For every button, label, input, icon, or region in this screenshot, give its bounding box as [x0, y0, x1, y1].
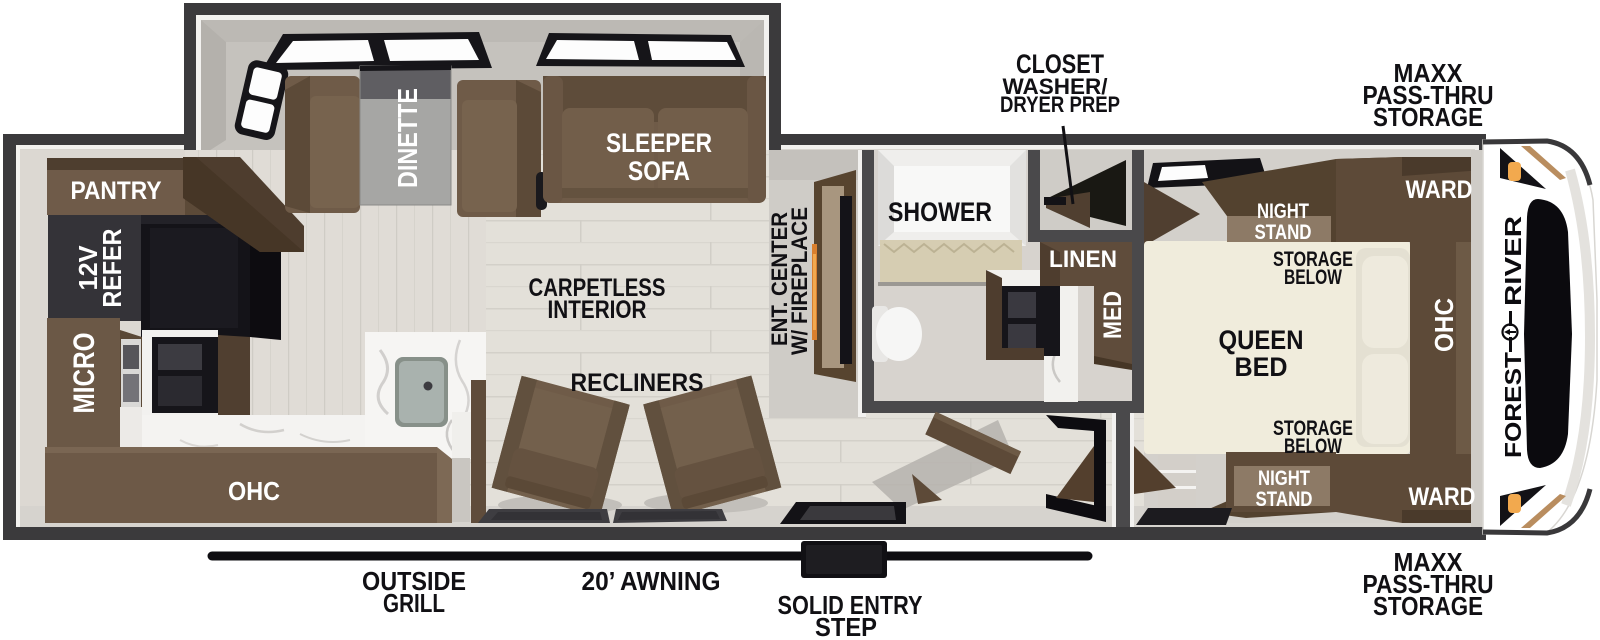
svg-text:GRILL: GRILL	[383, 588, 445, 618]
svg-text:STAND: STAND	[1256, 488, 1313, 511]
svg-text:FOREST: FOREST	[1500, 352, 1526, 458]
svg-text:RIVER: RIVER	[1500, 216, 1526, 306]
svg-text:WARD: WARD	[1406, 176, 1473, 204]
svg-text:DRYER PREP: DRYER PREP	[1000, 92, 1120, 117]
svg-text:REFER: REFER	[97, 228, 127, 307]
svg-text:INTERIOR: INTERIOR	[548, 296, 647, 324]
svg-text:LINEN: LINEN	[1049, 246, 1117, 273]
svg-text:STORAGE: STORAGE	[1373, 102, 1483, 132]
svg-text:W/ FIREPLACE: W/ FIREPLACE	[787, 207, 812, 355]
svg-text:OHC: OHC	[228, 476, 280, 506]
svg-text:20’ AWNING: 20’ AWNING	[582, 566, 721, 596]
svg-text:BED: BED	[1235, 352, 1288, 382]
svg-text:OHC: OHC	[1429, 298, 1459, 352]
svg-text:SLEEPER: SLEEPER	[606, 128, 712, 158]
svg-text:DINETTE: DINETTE	[392, 88, 423, 188]
svg-text:STORAGE: STORAGE	[1373, 591, 1483, 621]
svg-text:SHOWER: SHOWER	[888, 197, 992, 227]
svg-text:RECLINERS: RECLINERS	[571, 369, 704, 397]
svg-text:MED: MED	[1099, 291, 1127, 339]
svg-text:NIGHT: NIGHT	[1257, 200, 1309, 223]
svg-text:BELOW: BELOW	[1284, 435, 1342, 458]
svg-text:SOFA: SOFA	[628, 156, 690, 186]
svg-text:PANTRY: PANTRY	[71, 177, 162, 205]
svg-text:STAND: STAND	[1255, 221, 1312, 244]
svg-text:QUEEN: QUEEN	[1219, 325, 1304, 355]
svg-text:MICRO: MICRO	[68, 333, 101, 414]
svg-text:BELOW: BELOW	[1284, 266, 1342, 289]
svg-text:STEP: STEP	[815, 612, 877, 640]
svg-text:NIGHT: NIGHT	[1258, 467, 1310, 490]
svg-text:WARD: WARD	[1409, 483, 1476, 511]
